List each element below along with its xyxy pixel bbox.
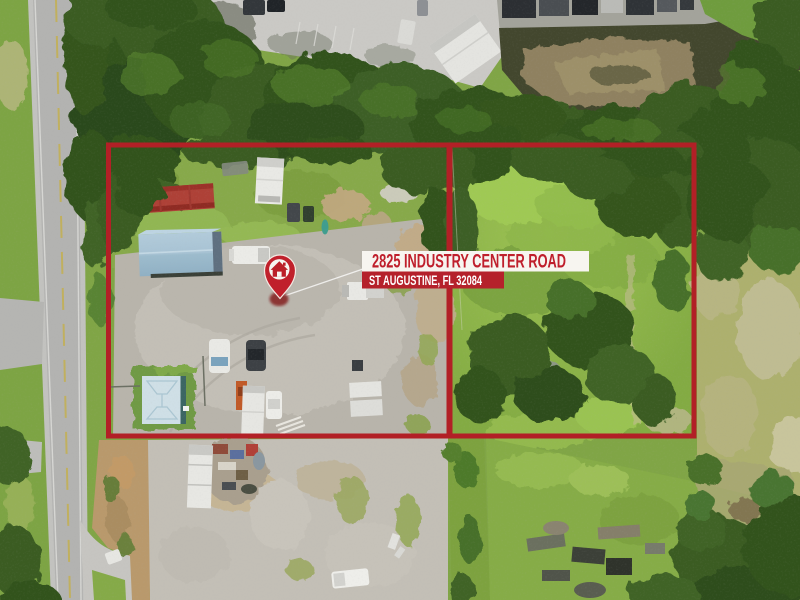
svg-text:ST AUGUSTINE, FL 32084: ST AUGUSTINE, FL 32084 <box>369 273 482 288</box>
svg-text:2825 INDUSTRY CENTER ROAD: 2825 INDUSTRY CENTER ROAD <box>372 252 566 273</box>
